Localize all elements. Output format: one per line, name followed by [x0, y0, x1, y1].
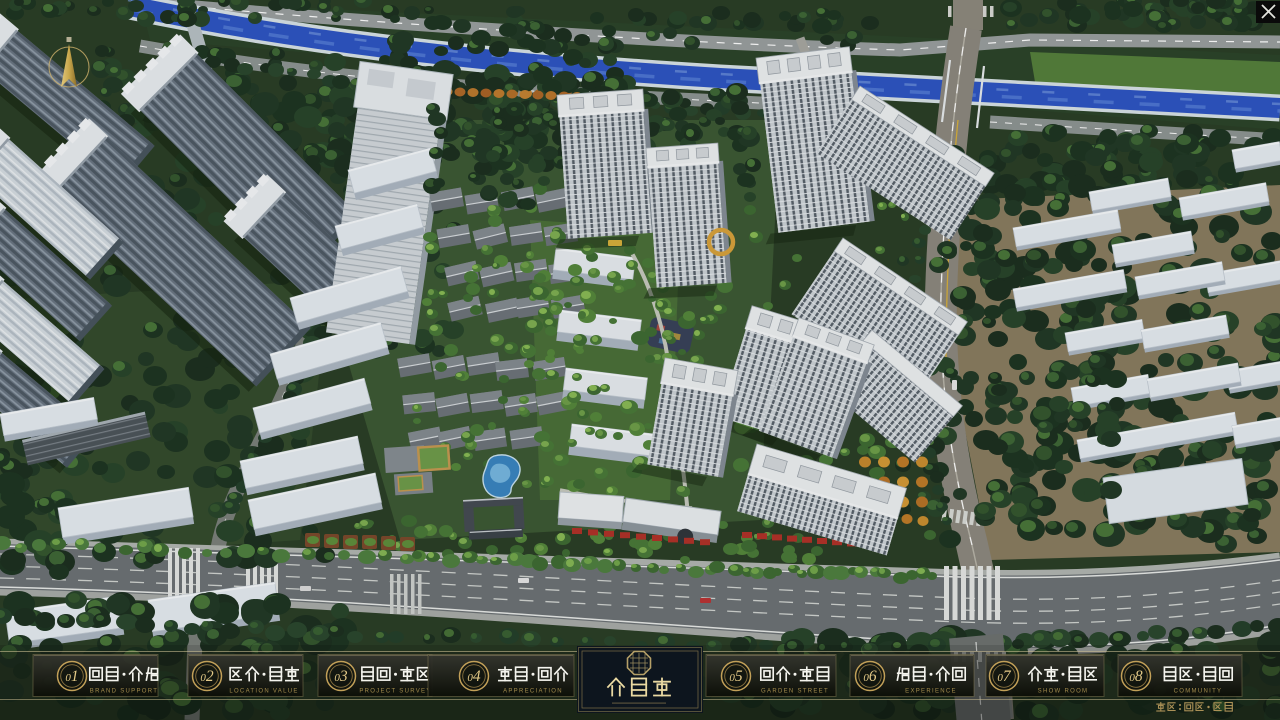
svg-text:COMMUNITY: COMMUNITY	[1174, 689, 1223, 695]
svg-text:APPRECIATION: APPRECIATION	[503, 689, 563, 695]
svg-text:BRAND SUPPORT: BRAND SUPPORT	[90, 689, 158, 695]
svg-text:EXPERIENCE: EXPERIENCE	[905, 689, 957, 695]
svg-text:LOCATION VALUE: LOCATION VALUE	[229, 689, 298, 695]
svg-text:SHOW ROOM: SHOW ROOM	[1038, 689, 1089, 695]
svg-text:GARDEN STREET: GARDEN STREET	[761, 689, 829, 695]
svg-text:PROJECT SURVEY: PROJECT SURVEY	[359, 689, 431, 695]
